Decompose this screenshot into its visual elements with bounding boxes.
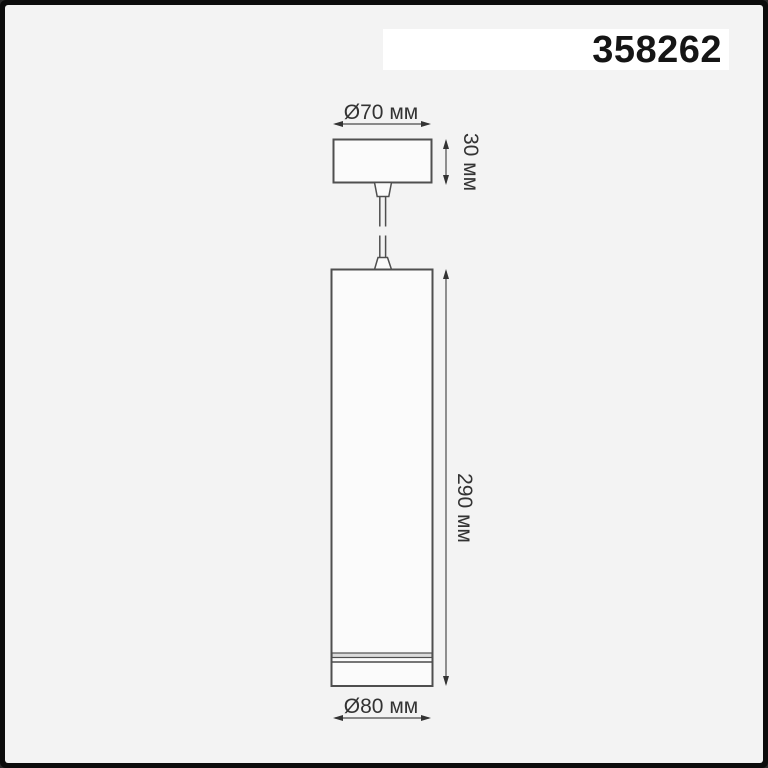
drawing-canvas: 358262 Ø70 мм — [5, 5, 763, 763]
arrowhead-up-icon — [443, 139, 449, 149]
body-cord-grip — [375, 258, 392, 270]
arrowhead-down-icon — [443, 175, 449, 185]
dim-canopy-height-label: 30 мм — [459, 133, 482, 191]
image-frame: 358262 Ø70 мм — [0, 0, 768, 768]
canopy-cord-grip — [375, 183, 392, 197]
arrowhead-up-icon — [443, 269, 449, 279]
arrowhead-right-icon — [421, 715, 431, 721]
body-trim-ring — [332, 653, 432, 658]
arrowhead-right-icon — [421, 121, 431, 127]
arrowhead-down-icon — [443, 676, 449, 686]
dim-canopy-diameter-label: Ø70 мм — [344, 101, 418, 124]
canopy-outline — [334, 140, 432, 183]
arrowhead-left-icon — [333, 121, 343, 127]
technical-drawing: Ø70 мм 30 мм 290 мм Ø80 мм — [5, 5, 763, 763]
dim-body-length-label: 290 мм — [453, 473, 476, 543]
dim-body-diameter-label: Ø80 мм — [344, 695, 418, 718]
body-outline — [332, 270, 433, 687]
arrowhead-left-icon — [333, 715, 343, 721]
